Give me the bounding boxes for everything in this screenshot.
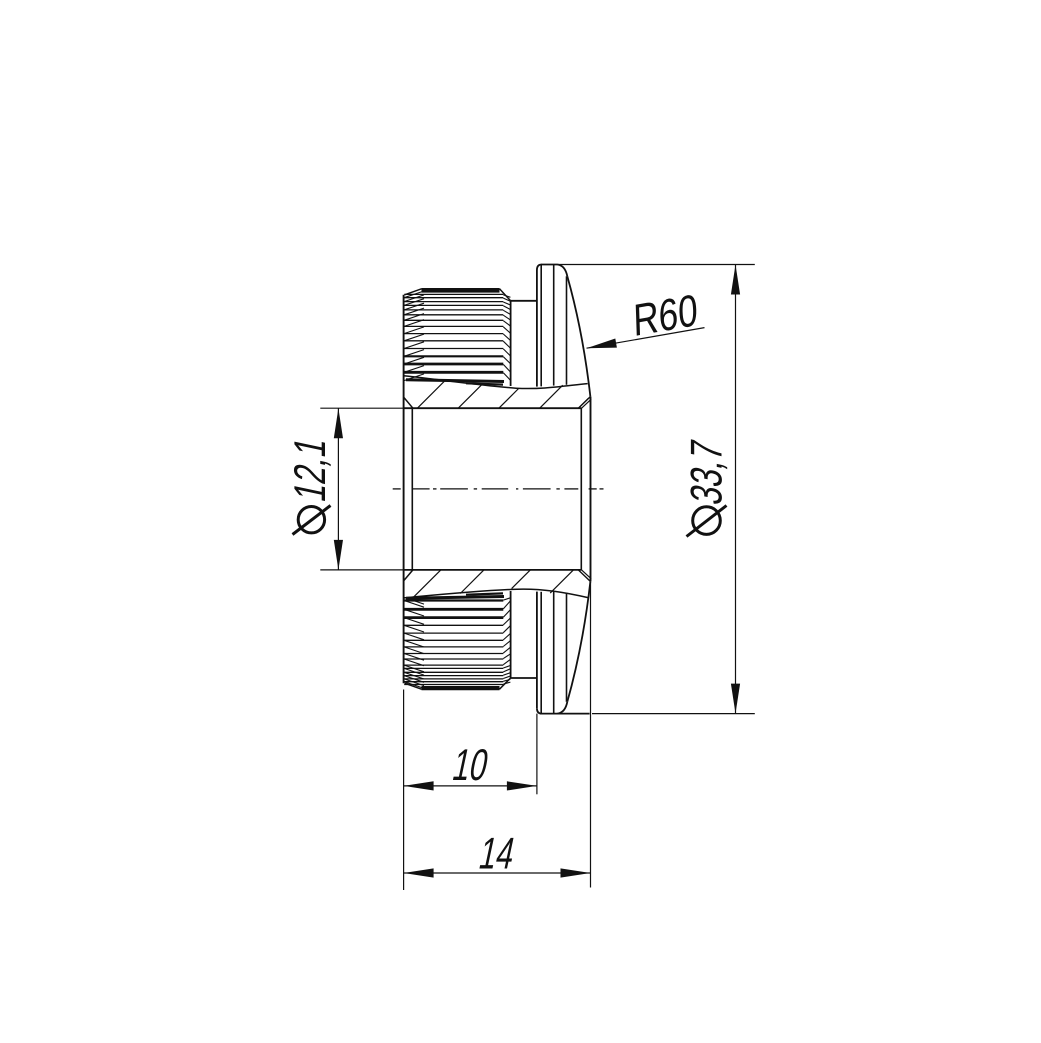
- svg-text:12,1: 12,1: [285, 433, 335, 506]
- svg-text:33,7: 33,7: [682, 436, 732, 509]
